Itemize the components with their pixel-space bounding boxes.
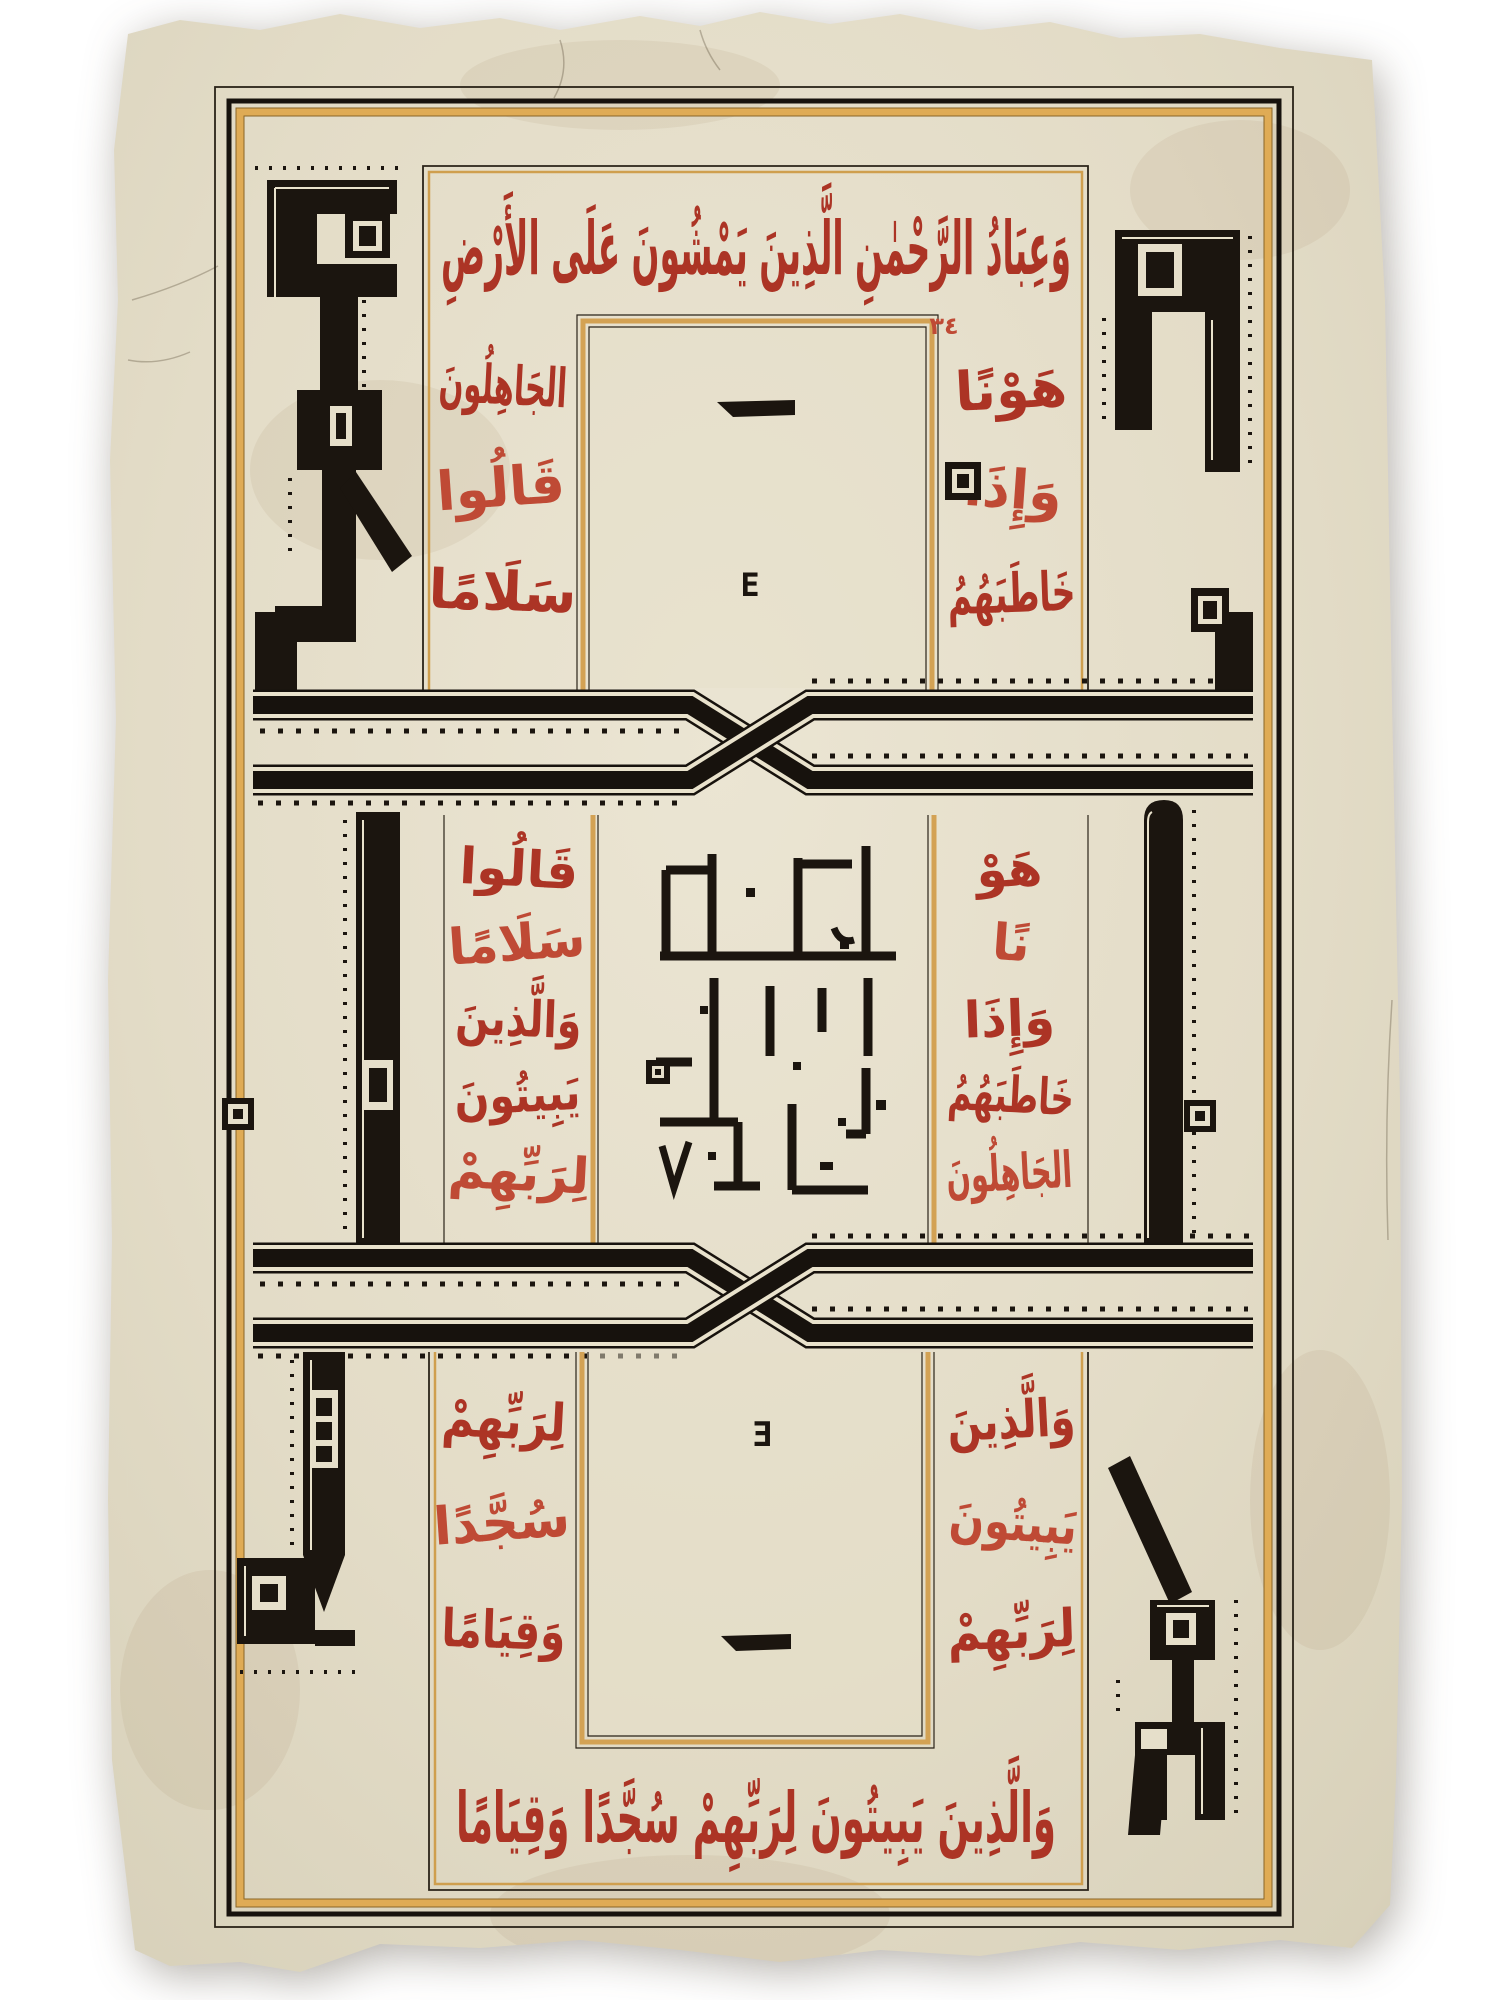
red-calligraphy-line: الجَاهِلُونَ	[437, 341, 569, 420]
kufic-ornament-bottom-left	[237, 1352, 360, 1672]
red-calligraphy-line: وَقِيَامًا	[441, 1599, 567, 1663]
red-calligraphy-line: يَبِيتُونَ	[453, 1063, 582, 1133]
panel-glyph-mark: Ǝ	[752, 1415, 772, 1455]
kufic-margin-bar-left	[345, 812, 400, 1245]
small-framed-square	[1191, 588, 1229, 632]
kufic-ornament-bottom-right	[1108, 1456, 1236, 1835]
red-calligraphy-line: وَالَّذِينَ	[455, 972, 584, 1051]
red-calligraphy-line: سَلَامًا	[446, 907, 587, 976]
small-framed-square	[222, 1098, 254, 1130]
red-calligraphy-line: وَعِبَادُ الرَّحْمٰنِ الَّذِينَ يَمْشُون…	[441, 183, 1071, 307]
kufic-margin-bar-right	[1144, 800, 1194, 1245]
red-calligraphy-line: لِرَبِّهِمْ	[440, 1387, 568, 1465]
red-calligraphy-line: وَالَّذِينَ	[945, 1370, 1077, 1454]
red-calligraphy-line: نًا	[990, 913, 1032, 973]
red-calligraphy-line: هَوْنًا	[954, 355, 1069, 424]
red-calligraphy-line: هَوْ	[972, 838, 1044, 901]
divider-band-upper	[253, 681, 1253, 803]
red-calligraphy-line: لِرَبِّهِمْ	[946, 1598, 1076, 1674]
divider-band-lower	[253, 1236, 1253, 1356]
square-kufic-center	[646, 846, 896, 1190]
red-calligraphy-line: خَاطَبَهُمُ	[946, 558, 1076, 627]
photo-of-calligraphy-leaf: وَعِبَادُ الرَّحْمٰنِ الَّذِينَ يَمْشُون…	[0, 0, 1500, 2000]
paper-sheet: وَعِبَادُ الرَّحْمٰنِ الَّذِينَ يَمْشُون…	[0, 0, 1500, 2000]
paper-shadow: وَعِبَادُ الرَّحْمٰنِ الَّذِينَ يَمْشُون…	[0, 0, 1500, 2000]
small-framed-square	[945, 462, 981, 500]
middle-red-calligraphy: هَوْ نًا وَإِذَا خَاطَبَهُمُ الجَاهِلُون…	[446, 828, 1075, 1215]
red-calligraphy-line: خَاطَبَهُمُ	[946, 1061, 1075, 1128]
red-calligraphy-line: سُجَّدًا	[432, 1487, 572, 1557]
verse-number-marker: ٣٤	[929, 312, 958, 340]
red-calligraphy-line: قَالُوا	[458, 828, 580, 902]
small-framed-square	[1184, 1100, 1216, 1132]
red-calligraphy-line: وَالَّذِينَ يَبِيتُونَ لِرَبِّهِمْ سُجَّ…	[456, 1755, 1056, 1873]
red-calligraphy-line: الجَاهِلُونَ	[944, 1132, 1073, 1206]
red-calligraphy-line: سَلَامًا	[428, 556, 578, 626]
middle-section: هَوْ نًا وَإِذَا خَاطَبَهُمُ الجَاهِلُون…	[222, 800, 1216, 1245]
calligraphy-artwork: وَعِبَادُ الرَّحْمٰنِ الَّذِينَ يَمْشُون…	[0, 0, 1500, 2000]
panel-glyph-mark: E	[740, 566, 759, 604]
red-calligraphy-line: وَإِذَا	[963, 988, 1056, 1058]
red-calligraphy-line: يَبِيتُونَ	[947, 1489, 1079, 1563]
red-calligraphy-line: لِرَبِّهِمْ	[447, 1140, 591, 1215]
